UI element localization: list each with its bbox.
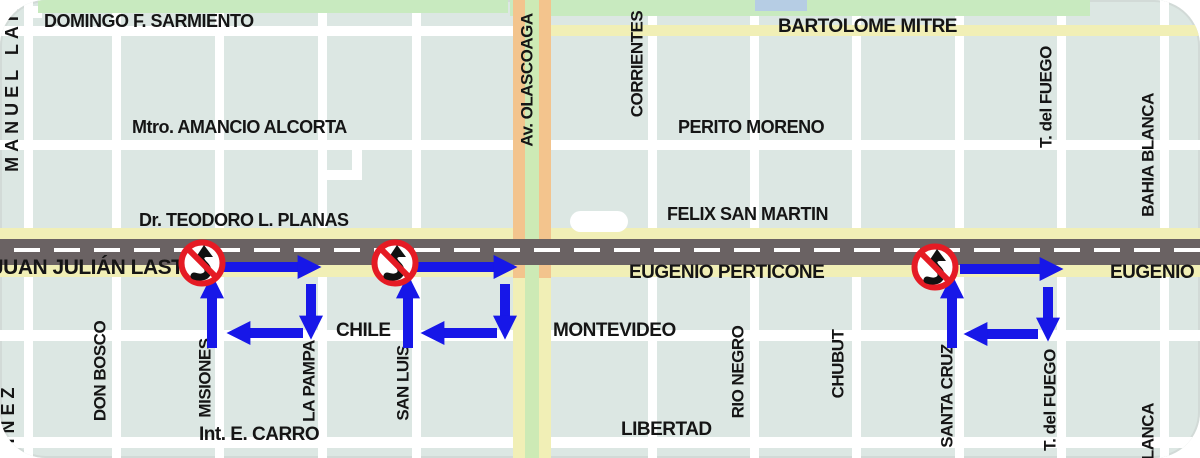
street-label-t-del-fuego-top: T. del FUEGO (1038, 46, 1055, 148)
street-label-santa-cruz: SANTA CRUZ (939, 344, 956, 448)
street-label-carro: Int. E. CARRO (199, 425, 319, 444)
street-label-montevideo: MONTEVIDEO (553, 321, 676, 340)
map-canvas: DOMINGO F. SARMIENTO BARTOLOME MITRE Mtr… (0, 0, 1200, 458)
street-label-felix-san-martin: FELIX SAN MARTIN (667, 205, 828, 223)
olascoaga-east-carriageway (539, 0, 551, 278)
street-label-mitre: BARTOLOME MITRE (778, 17, 957, 36)
street-label-perticone-right: EUGENIO PERTICONE (1110, 263, 1200, 282)
street-label-rio-negro: RIO NEGRO (730, 326, 747, 419)
street-label-t-del-fuego-bottom: T. del FUEGO (1042, 349, 1059, 451)
street-label-libertad: LIBERTAD (621, 420, 712, 439)
street-label-misiones: MISIONES (197, 338, 214, 417)
street-label-don-bosco: DON BOSCO (92, 321, 109, 421)
street-label-alcorta: Mtro. AMANCIO ALCORTA (132, 118, 347, 136)
olascoaga-east-lower (539, 278, 551, 458)
street-label-planas: Dr. TEODORO L. PLANAS (139, 211, 349, 229)
street-carro-libertad (0, 437, 1200, 448)
street-label-bahia-blanca-top: BAHIA BLANCA (1140, 93, 1157, 217)
olascoaga-west-lower (513, 278, 525, 458)
street-label-sarmiento: DOMINGO F. SARMIENTO (44, 12, 254, 30)
street-label-perito-moreno: PERITO MORENO (678, 118, 824, 136)
street-label-olascoaga: Av. OLASCOAGA (519, 13, 536, 146)
street-alcorta-perito-moreno (0, 140, 1200, 150)
street-label-chubut: CHUBUT (830, 330, 847, 399)
street-label-bahia-blanca-bottom: BAHIA BLANCA (1140, 403, 1157, 458)
street-label-lainez-bottom: LAINEZ (0, 383, 17, 458)
street-label-chile: CHILE (336, 321, 391, 340)
highway-center-dashes (0, 248, 1200, 252)
street-label-san-luis: SAN LUIS (395, 345, 412, 420)
street-label-corrientes: CORRIENTES (629, 11, 646, 117)
street-label-la-pampa: LA PAMPA (301, 340, 318, 422)
street-plaza-blob (570, 211, 628, 232)
water-area (755, 0, 807, 11)
street-label-perticone: EUGENIO PERTICONE (629, 263, 824, 282)
street-stub (352, 150, 362, 180)
street-label-manuel-lainez-top: MANUEL LAINEZ (3, 0, 21, 172)
street-label-lastra: JUAN JULIÁN LASTRA (0, 257, 213, 278)
